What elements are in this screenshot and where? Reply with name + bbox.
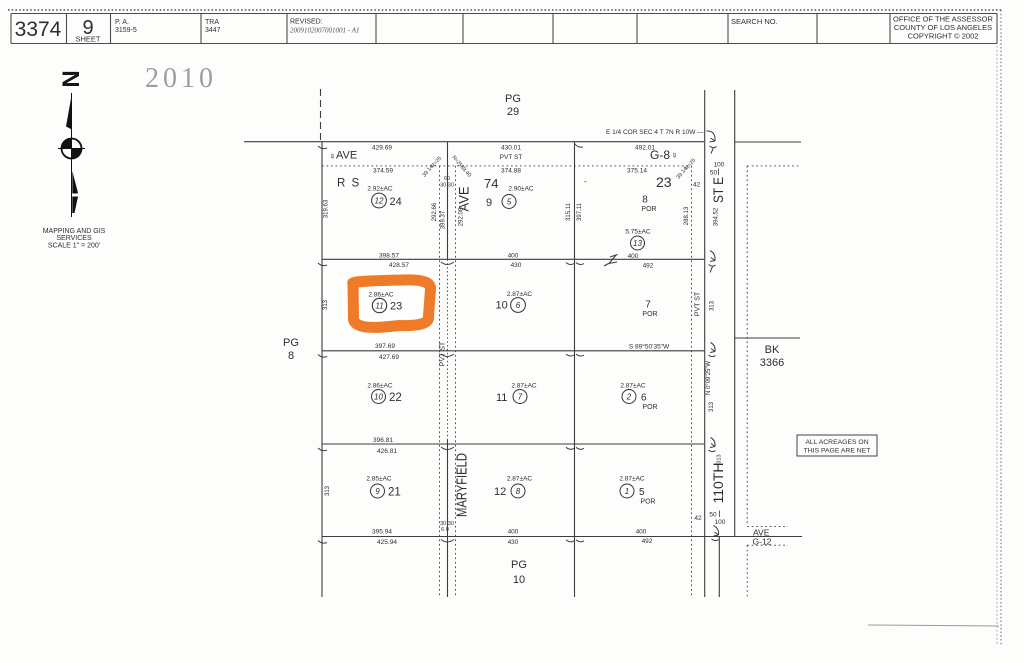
svg-text:374.59: 374.59 <box>373 168 393 175</box>
svg-text:492: 492 <box>642 538 653 545</box>
svg-text:AVE: AVE <box>456 187 472 212</box>
svg-text:ALL ACREAGES ON: ALL ACREAGES ON <box>805 439 868 446</box>
svg-text:23: 23 <box>656 174 672 190</box>
svg-text:3374: 3374 <box>15 18 62 41</box>
svg-text:AVE: AVE <box>336 150 357 162</box>
svg-text:2.87±AC: 2.87±AC <box>507 291 533 298</box>
svg-text:ST E: ST E <box>710 177 726 203</box>
svg-text:2.86±AC: 2.86±AC <box>368 292 394 299</box>
svg-text:11: 11 <box>375 302 383 311</box>
svg-text:-: - <box>584 177 587 186</box>
svg-text:400: 400 <box>628 253 639 260</box>
svg-text:428.57: 428.57 <box>389 262 409 269</box>
svg-text:400: 400 <box>508 529 519 536</box>
svg-text:N 0°09’25”W: N 0°09’25”W <box>706 361 712 395</box>
svg-text:21: 21 <box>388 487 401 499</box>
svg-text:2.87±AC: 2.87±AC <box>507 476 533 483</box>
svg-text:13: 13 <box>633 239 642 248</box>
svg-text:430.01: 430.01 <box>501 145 521 152</box>
svg-text:396.81: 396.81 <box>373 437 393 444</box>
svg-text:8: 8 <box>642 195 648 206</box>
svg-text:6: 6 <box>641 393 647 404</box>
svg-text:MAPPING AND GIS: MAPPING AND GIS <box>43 228 106 235</box>
svg-text:2.87±AC: 2.87±AC <box>511 383 537 390</box>
svg-text:7: 7 <box>645 300 651 311</box>
svg-text:398.57: 398.57 <box>379 253 399 260</box>
svg-text:62: 62 <box>672 152 677 158</box>
svg-text:5: 5 <box>507 198 512 207</box>
svg-text:PVT ST: PVT ST <box>440 341 447 366</box>
svg-text:9: 9 <box>486 197 492 209</box>
svg-text:6: 6 <box>516 301 521 310</box>
svg-text:2.87±AC: 2.87±AC <box>619 476 645 483</box>
svg-text:7: 7 <box>518 393 523 402</box>
svg-text:2.85±AC: 2.85±AC <box>366 476 392 483</box>
svg-text:12: 12 <box>375 197 384 206</box>
svg-text:3366: 3366 <box>760 357 784 369</box>
svg-text:292.66: 292.66 <box>432 202 438 221</box>
svg-text:313: 313 <box>717 454 723 463</box>
svg-text:2.90±AC: 2.90±AC <box>508 186 534 193</box>
svg-text:374.88: 374.88 <box>501 168 521 175</box>
svg-text:42: 42 <box>693 182 701 189</box>
svg-text:5: 5 <box>639 487 645 498</box>
svg-text:74: 74 <box>484 176 498 191</box>
svg-text:POR: POR <box>642 311 657 318</box>
svg-text:426.81: 426.81 <box>377 448 397 455</box>
svg-text:22: 22 <box>389 392 402 404</box>
svg-text:R S: R S <box>337 178 361 190</box>
svg-text:82: 82 <box>330 153 335 159</box>
svg-text:POR: POR <box>641 206 656 213</box>
svg-text:100: 100 <box>715 519 726 526</box>
svg-text:S 89°50’35”W: S 89°50’35”W <box>629 343 670 351</box>
svg-text:313: 313 <box>323 299 329 310</box>
svg-text:10: 10 <box>513 574 525 586</box>
svg-text:5.75±AC: 5.75±AC <box>625 229 651 236</box>
svg-text:375.14: 375.14 <box>627 168 647 175</box>
svg-text:2: 2 <box>626 393 632 402</box>
svg-text:SCALE 1" = 200′: SCALE 1" = 200′ <box>48 243 101 250</box>
svg-text:400: 400 <box>636 529 647 536</box>
svg-text:PG: PG <box>511 559 527 571</box>
svg-text:POR: POR <box>640 499 655 506</box>
svg-text:29: 29 <box>507 106 519 118</box>
svg-text:315.11: 315.11 <box>566 202 572 221</box>
svg-text:319.63: 319.63 <box>324 199 330 218</box>
svg-text:430: 430 <box>508 539 519 546</box>
svg-text:399.37: 399.37 <box>441 210 447 229</box>
svg-text:492: 492 <box>643 263 654 270</box>
svg-text:POR: POR <box>642 404 657 411</box>
svg-text:397.11: 397.11 <box>577 202 583 221</box>
svg-text:42: 42 <box>694 515 702 522</box>
svg-text:P. A.: P. A. <box>115 19 129 26</box>
svg-text:1: 1 <box>625 487 629 496</box>
svg-text:427.69: 427.69 <box>379 354 399 361</box>
svg-text:394.52: 394.52 <box>714 207 720 226</box>
svg-text:PG: PG <box>505 93 521 105</box>
svg-text:8: 8 <box>516 487 521 496</box>
svg-text:N: N <box>58 70 85 87</box>
svg-text:PG: PG <box>283 337 299 349</box>
svg-text:313: 313 <box>325 485 331 496</box>
svg-text:6 0: 6 0 <box>441 527 449 533</box>
svg-text:9: 9 <box>375 487 380 496</box>
svg-text:2010: 2010 <box>145 63 217 94</box>
svg-text:288.13: 288.13 <box>684 206 690 225</box>
svg-text:2.87±AC: 2.87±AC <box>620 383 646 390</box>
svg-text:10: 10 <box>374 393 383 402</box>
svg-text:2009102007001001 - A1: 2009102007001001 - A1 <box>290 27 359 35</box>
svg-text:10: 10 <box>496 300 508 312</box>
svg-text:313: 313 <box>709 401 715 412</box>
svg-text:100: 100 <box>714 162 725 169</box>
svg-text:SHEET: SHEET <box>75 35 100 44</box>
svg-text:50: 50 <box>709 512 717 519</box>
svg-text:110TH: 110TH <box>710 463 726 504</box>
svg-text:E 1/4 COR SEC 4 T 7N R 10W —: E 1/4 COR SEC 4 T 7N R 10W — <box>606 129 704 136</box>
svg-text:PVT ST: PVT ST <box>500 154 523 161</box>
svg-text:BK: BK <box>765 344 780 356</box>
svg-text:TRA: TRA <box>205 19 219 26</box>
svg-text:THIS PAGE ARE NET: THIS PAGE ARE NET <box>804 448 871 455</box>
svg-text:50: 50 <box>710 170 718 177</box>
svg-text:430: 430 <box>511 262 522 269</box>
svg-text:2.92±AC: 2.92±AC <box>367 186 393 193</box>
svg-text:SEARCH NO.: SEARCH NO. <box>731 17 778 26</box>
svg-text:SERVICES: SERVICES <box>56 235 92 242</box>
svg-text:12: 12 <box>494 486 506 498</box>
svg-text:425.94: 425.94 <box>377 539 397 546</box>
svg-text:G-8: G-8 <box>650 148 670 162</box>
svg-text:60: 60 <box>444 176 450 182</box>
svg-text:G-12: G-12 <box>753 537 772 547</box>
svg-text:24: 24 <box>390 196 402 208</box>
svg-text:COPYRIGHT © 2002: COPYRIGHT © 2002 <box>908 32 979 41</box>
svg-text:REVISED:: REVISED: <box>290 19 323 26</box>
svg-text:2.86±AC: 2.86±AC <box>367 383 393 390</box>
svg-text:3447: 3447 <box>205 27 221 34</box>
svg-text:8: 8 <box>288 350 294 362</box>
svg-text:313: 313 <box>710 300 716 311</box>
svg-text:30 30: 30 30 <box>440 183 454 189</box>
svg-text:3159-5: 3159-5 <box>115 27 137 34</box>
svg-text:400: 400 <box>508 253 519 260</box>
svg-text:MARYFIELD: MARYFIELD <box>454 453 471 517</box>
svg-text:429.69: 429.69 <box>372 145 392 152</box>
svg-text:397.69: 397.69 <box>375 343 395 350</box>
svg-text:23: 23 <box>390 300 402 312</box>
svg-text:11: 11 <box>496 392 507 404</box>
svg-text:395.94: 395.94 <box>372 529 392 536</box>
svg-text:PVT ST: PVT ST <box>695 291 702 316</box>
